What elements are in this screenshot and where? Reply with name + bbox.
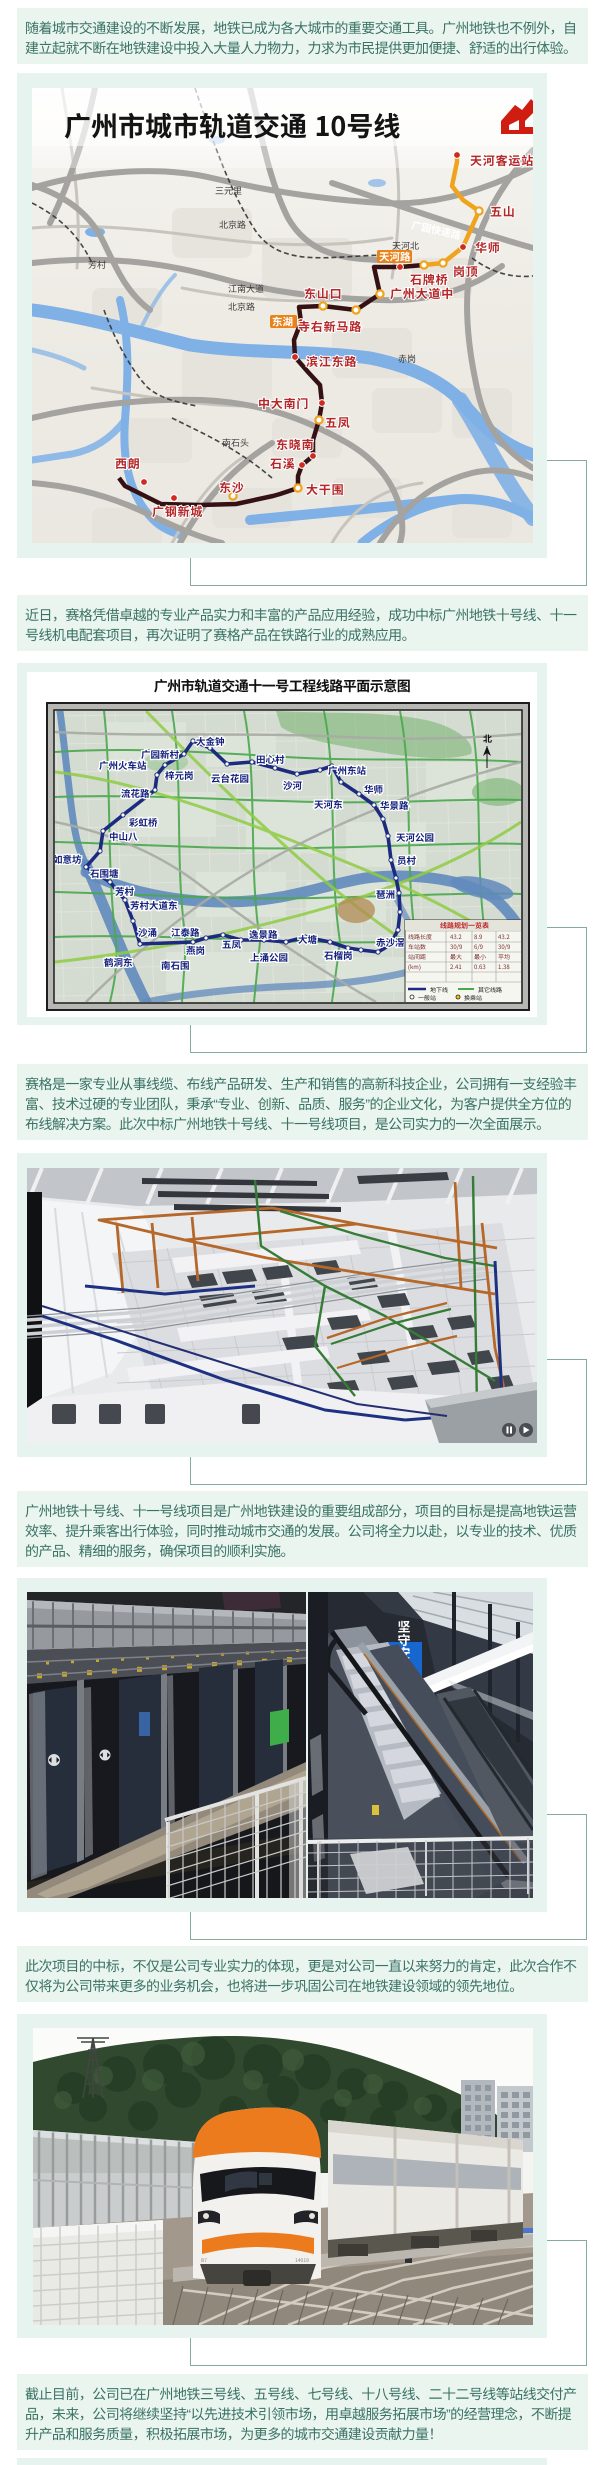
svg-text:B7: B7 — [201, 2257, 207, 2264]
svg-text:华师: 华师 — [364, 782, 384, 796]
svg-text:石溪: 石溪 — [270, 455, 296, 472]
svg-text:14019: 14019 — [295, 2257, 309, 2264]
svg-text:最小: 最小 — [474, 952, 486, 961]
svg-text:五山: 五山 — [490, 203, 516, 220]
svg-text:站间距: 站间距 — [408, 952, 426, 961]
svg-text:华师: 华师 — [475, 239, 501, 256]
svg-text:换乘站: 换乘站 — [464, 993, 482, 1002]
svg-text:滨江东路: 滨江东路 — [306, 353, 357, 370]
svg-text:北: 北 — [483, 732, 492, 745]
svg-text:寺右新马路: 寺右新马路 — [298, 318, 362, 335]
svg-text:平均: 平均 — [498, 952, 510, 961]
svg-text:赤沙滘: 赤沙滘 — [376, 935, 405, 949]
svg-text:广州火车站: 广州火车站 — [99, 758, 147, 772]
svg-text:西朗: 西朗 — [115, 455, 141, 472]
svg-text:石围塘: 石围塘 — [90, 866, 119, 880]
svg-text:8.9: 8.9 — [474, 932, 482, 941]
svg-text:南石头: 南石头 — [222, 436, 249, 449]
svg-text:一般站: 一般站 — [418, 993, 436, 1002]
svg-text:沙涌: 沙涌 — [138, 925, 157, 939]
svg-text:燕岗: 燕岗 — [186, 943, 205, 957]
svg-text:43.2: 43.2 — [450, 932, 462, 941]
svg-text:石榴岗: 石榴岗 — [324, 948, 353, 962]
svg-text:大干围: 大干围 — [306, 481, 344, 498]
svg-text:芳村大道东: 芳村大道东 — [130, 898, 178, 912]
svg-text:广州市城市轨道交通 10号线: 广州市城市轨道交通 10号线 — [64, 105, 400, 144]
svg-text:五凤: 五凤 — [325, 414, 351, 431]
svg-text:车站数: 车站数 — [408, 942, 426, 951]
svg-text:广钢新城: 广钢新城 — [152, 503, 203, 520]
svg-text:云台花园: 云台花园 — [211, 771, 249, 785]
svg-text:逸景路: 逸景路 — [249, 927, 278, 941]
svg-text:广园新村: 广园新村 — [141, 747, 180, 761]
svg-text:梓元岗: 梓元岗 — [165, 768, 194, 782]
svg-text:上涌公园: 上涌公园 — [250, 950, 288, 964]
svg-text:线路长度: 线路长度 — [408, 932, 432, 941]
svg-text:广州大道中: 广州大道中 — [390, 285, 454, 302]
svg-text:30/9: 30/9 — [450, 942, 462, 951]
svg-text:三元里: 三元里 — [215, 184, 242, 197]
svg-text:(km): (km) — [408, 962, 421, 971]
svg-text:线路规划一览表: 线路规划一览表 — [440, 921, 489, 931]
svg-text:中山八: 中山八 — [109, 829, 138, 843]
svg-text:6/9: 6/9 — [474, 942, 483, 951]
svg-text:五凤: 五凤 — [222, 937, 242, 951]
svg-text:43.2: 43.2 — [498, 932, 510, 941]
svg-text:天河东: 天河东 — [314, 797, 343, 811]
svg-text:天河路: 天河路 — [379, 250, 411, 265]
svg-text:芳村: 芳村 — [115, 884, 135, 898]
svg-text:鹤洞东: 鹤洞东 — [104, 955, 133, 969]
svg-text:2.41: 2.41 — [450, 962, 462, 971]
svg-text:北京路: 北京路 — [228, 300, 255, 313]
svg-text:东晓南: 东晓南 — [276, 436, 314, 453]
svg-text:流花路: 流花路 — [121, 786, 150, 800]
svg-text:大金钟: 大金钟 — [196, 734, 225, 748]
svg-text:天河公园: 天河公园 — [396, 830, 434, 844]
svg-text:芳村: 芳村 — [88, 258, 106, 271]
svg-text:田心村: 田心村 — [256, 752, 285, 766]
svg-text:琶洲: 琶洲 — [376, 887, 395, 901]
svg-text:大塘: 大塘 — [298, 932, 318, 946]
svg-text:最大: 最大 — [450, 952, 462, 961]
svg-text:东湖: 东湖 — [272, 315, 293, 330]
svg-text:东山口: 东山口 — [304, 285, 342, 302]
svg-text:沙河: 沙河 — [283, 778, 303, 792]
svg-text:东沙: 东沙 — [219, 479, 245, 496]
svg-text:30/9: 30/9 — [498, 942, 510, 951]
svg-text:江泰路: 江泰路 — [171, 925, 200, 939]
svg-text:北京路: 北京路 — [219, 218, 246, 231]
svg-text:0.63: 0.63 — [474, 962, 486, 971]
svg-text:江南大道: 江南大道 — [228, 282, 264, 295]
svg-text:彩虹桥: 彩虹桥 — [129, 815, 158, 829]
svg-text:中大南门: 中大南门 — [258, 395, 309, 412]
svg-text:南石围: 南石围 — [161, 958, 190, 972]
svg-text:赤岗: 赤岗 — [398, 352, 416, 365]
svg-text:天河客运站: 天河客运站 — [470, 152, 533, 169]
svg-text:1.38: 1.38 — [498, 962, 510, 971]
svg-text:员村: 员村 — [397, 853, 417, 867]
svg-text:如意坊: 如意坊 — [53, 852, 82, 866]
svg-text:岗顶: 岗顶 — [453, 263, 479, 280]
svg-text:华景路: 华景路 — [380, 798, 409, 812]
svg-text:广州东站: 广州东站 — [328, 763, 367, 777]
